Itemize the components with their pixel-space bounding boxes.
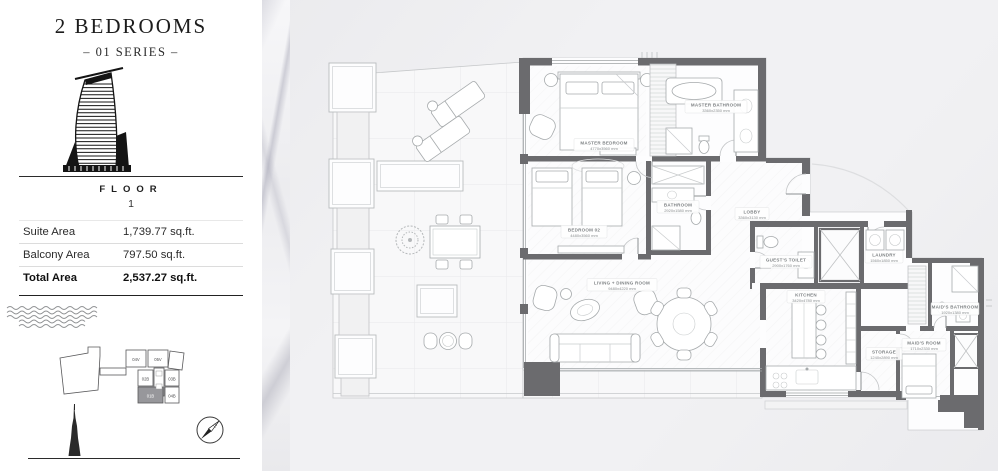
floor-plan: MASTER BEDROOM 4770x3560 mm MASTER BATHR… — [290, 0, 998, 471]
keyplan-icon: 04V 05V 02B 03B 01B 04B — [58, 344, 198, 406]
suite-area-label: Suite Area — [23, 226, 123, 238]
svg-text:3360x2350 mm: 3360x2350 mm — [702, 108, 730, 113]
brochure-page: 2 BEDROOMS – 01 SERIES – — [0, 0, 998, 471]
svg-text:1710x2330 mm: 1710x2330 mm — [910, 346, 938, 351]
svg-text:2900x1760 mm: 2900x1760 mm — [772, 263, 800, 268]
svg-text:3360x3130 mm: 3360x3130 mm — [738, 215, 766, 220]
lower-ledge — [765, 401, 907, 409]
keyplan-unit-04b: 04B — [168, 394, 176, 399]
area-row-suite: Suite Area 1,739.77 sq.ft. — [19, 221, 243, 244]
toilet-icon — [699, 136, 709, 154]
keyplan-unit-01b: 01B — [147, 394, 155, 399]
svg-text:1240x2890 mm: 1240x2890 mm — [870, 355, 898, 360]
table-underline — [19, 295, 243, 296]
marble-divider — [262, 0, 290, 471]
single-bed-icon — [532, 168, 572, 226]
svg-text:1560x1850 mm: 1560x1850 mm — [870, 258, 898, 263]
sofa-icon — [550, 334, 640, 362]
room-label-bathroom: BATHROOM 2920x1580 mm — [657, 201, 699, 214]
building-illustration-wrap — [19, 64, 243, 177]
balcony-area-value: 797.50 sq.ft. — [123, 249, 239, 261]
svg-text:9480x4220 mm: 9480x4220 mm — [608, 286, 636, 291]
side-table-icon — [561, 289, 572, 300]
kitchen-counter-icon — [766, 366, 856, 390]
svg-text:4770x3560 mm: 4770x3560 mm — [590, 146, 618, 151]
waves-icon — [0, 305, 110, 328]
suite-area-value: 1,739.77 sq.ft. — [123, 226, 239, 238]
vanity-icon — [652, 188, 694, 202]
keyplan-unit-03b: 03B — [168, 377, 176, 382]
room-label-bedroom-02: BEDROOM 02 4480x3560 mm — [561, 226, 607, 239]
linen-closet-icon — [652, 166, 704, 184]
shower-icon — [652, 226, 680, 250]
tall-cabinets-icon — [846, 292, 856, 364]
bathtub-icon — [666, 78, 722, 104]
waves-wrap — [0, 305, 262, 328]
floor-label: FLOOR — [0, 184, 262, 195]
toilet-icon — [691, 212, 701, 225]
kitchen-island-icon — [792, 300, 826, 359]
total-area-label: Total Area — [23, 272, 123, 284]
svg-text:1920x1380 mm: 1920x1380 mm — [941, 310, 969, 315]
corridor-arc — [812, 164, 908, 210]
hall-closet-icon — [908, 266, 926, 324]
total-area-value: 2,537.27 sq.ft. — [123, 272, 239, 284]
room-label-laundry: LAUNDRY 1560x1850 mm — [865, 251, 903, 264]
left-panel: 2 BEDROOMS – 01 SERIES – — [0, 0, 262, 471]
tv-console-icon — [558, 246, 624, 253]
keyplan-unit-05v: 05V — [154, 357, 162, 362]
room-label-lobby: LOBBY 3360x3130 mm — [735, 208, 769, 221]
outdoor-coffee-set-icon — [424, 333, 472, 350]
shower-icon — [666, 128, 692, 154]
room-label-storage: STORAGE 1240x2890 mm — [866, 348, 902, 361]
room-label-maids-room: MAID'S ROOM 1710x2330 mm — [902, 339, 946, 352]
floor-number: 1 — [0, 198, 262, 210]
area-row-total: Total Area 2,537.27 sq.ft. — [19, 267, 243, 289]
nightstand-icon — [628, 172, 641, 185]
page-title: 2 BEDROOMS — [0, 14, 262, 39]
svg-text:4480x3560 mm: 4480x3560 mm — [570, 233, 598, 238]
keyplan: 04V 05V 02B 03B 01B 04B — [58, 344, 198, 406]
series-label: – 01 SERIES – — [0, 45, 262, 60]
compass-wrap — [194, 414, 226, 446]
keyplan-unit-02b: 02B — [142, 377, 150, 382]
service-shaft — [954, 334, 978, 368]
svg-text:2920x1580 mm: 2920x1580 mm — [664, 208, 692, 213]
spire-tower-icon — [64, 404, 86, 458]
spire-wrap — [64, 404, 86, 458]
area-row-balcony: Balcony Area 797.50 sq.ft. — [19, 244, 243, 267]
maid-bed-icon — [902, 354, 936, 398]
room-label-maids-bathroom: MAID'S BATHROOM 1920x1380 mm — [931, 303, 979, 316]
room-label-guests-toilet: GUEST'S TOILET 2900x1760 mm — [760, 256, 812, 269]
keyplan-unit-04v: 04V — [132, 357, 140, 362]
balcony-area-label: Balcony Area — [23, 249, 123, 261]
ground-line — [28, 458, 240, 459]
room-label-living-dining: LIVING + DINING ROOM 9480x4220 mm — [587, 279, 657, 292]
double-vanity-icon — [734, 90, 758, 152]
building-icon — [19, 64, 169, 176]
floor-plan-area: MASTER BEDROOM 4770x3560 mm MASTER BATHR… — [290, 0, 998, 471]
single-bed-icon — [582, 168, 622, 226]
elevator-shaft — [820, 229, 860, 281]
room-label-master-bedroom: MASTER BEDROOM 4770x3560 mm — [574, 139, 634, 152]
room-label-master-bathroom: MASTER BATHROOM 3360x2350 mm — [685, 101, 747, 114]
compass-icon — [194, 414, 226, 446]
room-label-kitchen: KITCHEN 3420x4780 mm — [787, 291, 825, 304]
area-table: Suite Area 1,739.77 sq.ft. Balcony Area … — [19, 220, 243, 289]
svg-text:3420x4780 mm: 3420x4780 mm — [792, 298, 820, 303]
